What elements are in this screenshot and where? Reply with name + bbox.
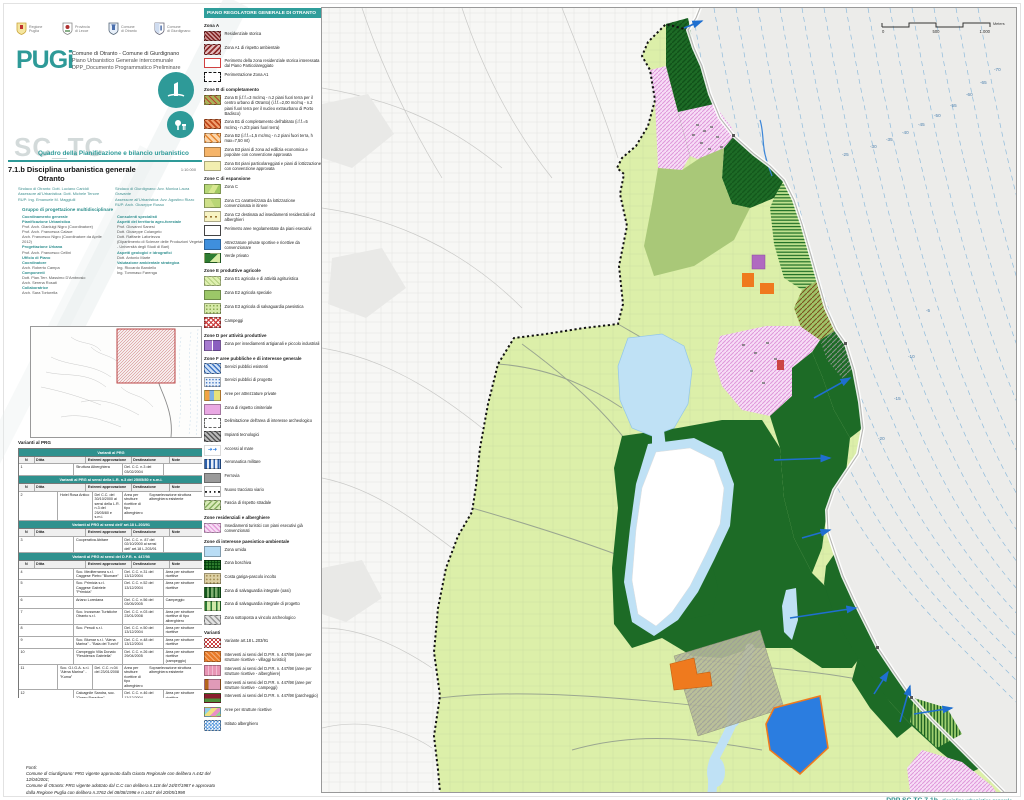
- legend-section-title: Zone residenziali e alberghiere: [204, 515, 321, 520]
- sources-note: Fonti: Comune di Giurdignano: PRG vigent…: [26, 765, 216, 796]
- legend-swatch-icon: [204, 363, 221, 374]
- table-cell: Area per strutture ricettive: [164, 625, 199, 636]
- svg-text:-40: -40: [902, 130, 909, 135]
- team-title: Gruppo di progettazione multidisciplinar…: [22, 207, 113, 212]
- legend-item: Fascia di rispetto stradale: [204, 500, 321, 511]
- credit-line: RUP: Ing. Emanuele M. Maggiulli: [18, 197, 105, 202]
- series-rule: [8, 160, 202, 162]
- sheet-caption: DPP SC.TC.7.1bdisciplina urbanistica gen…: [886, 789, 1012, 800]
- team-block: Coordinamento generalePianificazione Urb…: [22, 214, 204, 295]
- legend-item-label: Variante art.18 L.203/91: [225, 638, 269, 644]
- legend-item: Costa gariga-pascolo incolto: [204, 573, 321, 584]
- sheet-heading: 7.1.b Disciplina urbanistica generale Ot…: [8, 165, 202, 183]
- svg-text:-20: -20: [878, 436, 885, 441]
- legend-item-label: Delimitazione dell'area di interesse arc…: [225, 418, 312, 424]
- legend-swatch-icon: [204, 211, 221, 222]
- legend-swatch-icon: [204, 198, 221, 209]
- legend-item-label: Zona E2 agricola speciale: [225, 290, 272, 296]
- table-cell: Cooperativa Abitare: [74, 537, 122, 552]
- table-cell: 1: [19, 464, 74, 475]
- credits-giurdignano: Sindaco di Giurdignano: Avv. Monica Laur…: [115, 186, 202, 207]
- legend-item: Variante art.18 L.203/91: [204, 638, 321, 649]
- table-column-header-row: N Ditta Estremi approvazione Destinazion…: [19, 529, 202, 536]
- legend-section: Zone B di completamento Zona B (i.f.f.=3…: [204, 87, 321, 171]
- table-cell: Campeggio: [164, 597, 199, 608]
- table-rows: 3Cooperativa AbitareDel. C.C. n. 87 del …: [19, 537, 202, 553]
- legend-item-label: Zona A1 di rispetto ambientale: [225, 44, 280, 50]
- table-section-header: Varianti al PRG ai sensi dell' art.18 L.…: [19, 521, 202, 529]
- credit-line: Sindaco di Giurdignano: Avv. Monica Laur…: [115, 186, 202, 197]
- table-cell: Area per strutture ricettive di tipo alb…: [164, 609, 199, 624]
- legend-item-label: Aree per attrezzature private: [225, 390, 277, 396]
- provincia-lecce-shield-icon: [62, 22, 73, 35]
- credit-line: Assessore all'Urbanistica: Dott. Michele…: [18, 191, 105, 196]
- col-header: N: [19, 457, 35, 463]
- legend-swatch-icon: [204, 500, 221, 511]
- table-cell: [199, 464, 202, 475]
- red-variant-marker: [777, 360, 784, 370]
- col-header: Destinazione: [132, 457, 171, 463]
- varianti-table-wrap: Varianti al PRG N Ditta Estremi approvaz…: [18, 448, 202, 698]
- table-cell: Campeggio Villa Donato "Residenza Gabrie…: [74, 649, 122, 664]
- col-header: Note: [170, 561, 202, 567]
- pugi-rural-logo-icon: [167, 111, 194, 138]
- svg-text:-15: -15: [894, 396, 901, 401]
- table-cell: Sopraelevazione struttura alberghiera es…: [148, 665, 202, 689]
- logo-label: Comunedi Giurdignano: [167, 22, 193, 34]
- legend-swatch-icon: [204, 560, 221, 571]
- legend-item: Campeggi: [204, 317, 321, 328]
- table-cell: 4: [19, 569, 74, 580]
- legend-swatch-icon: [204, 573, 221, 584]
- table-cell: Area per strutture ricettive: [164, 569, 199, 580]
- legend-swatch-icon: [204, 303, 221, 314]
- legend-item: Interventi ai sensi del D.P.R. n. 447/98…: [204, 693, 321, 704]
- legend-item: Zona B1 di completamento dell'abitato (i…: [204, 119, 321, 130]
- legend-item-label: Attrezzature private sportive e ricettiv…: [225, 239, 322, 250]
- comune-otranto-shield-icon: [108, 22, 119, 35]
- table-cell: 10: [19, 649, 74, 664]
- artisan-zone-purple: [752, 255, 765, 269]
- credit-line: RUP: Arch. Giuseppe Russo: [115, 202, 202, 207]
- table-cell: Ariano Loredana: [74, 597, 122, 608]
- legend-item: Zona per insediamenti artigianali e picc…: [204, 340, 321, 351]
- legend-swatch-icon: [204, 290, 221, 301]
- table-cell: [199, 580, 202, 595]
- col-header: Ditta: [35, 457, 87, 463]
- legend-section: Zone C di espansione Zona C Zona C1 cara…: [204, 176, 321, 263]
- legend-swatch-icon: [204, 147, 221, 158]
- legend-swatch-icon: [204, 95, 221, 106]
- legend-item: Zona A1 di rispetto ambientale: [204, 44, 321, 55]
- legend-item: Impianti tecnologici: [204, 431, 321, 442]
- table-column-header-row: N Ditta Estremi approvazione Destinazion…: [19, 484, 202, 491]
- legend-swatch-icon: [204, 431, 221, 442]
- legend-item: Interventi ai sensi del D.P.R. n. 447/98…: [204, 679, 321, 690]
- table-cell: [199, 609, 202, 624]
- table-cell: 8: [19, 625, 74, 636]
- table-cell: Calcagnile Sandra, soc. "Green Paradise": [74, 690, 122, 698]
- table-cell: Soc. Mediterranea s.r.l. Caggese Pietro …: [74, 569, 122, 580]
- col-header: Note: [170, 529, 202, 535]
- legend-item: Zona B (i.f.f.=3 mc/mq - n.2 piani fuori…: [204, 95, 321, 116]
- legend-item-label: Accessi al mare: [225, 445, 254, 451]
- legend-swatch-icon: [204, 707, 221, 718]
- legend-section: Zone di interesse paesistico-ambientale …: [204, 539, 321, 625]
- legend-item-label: Ferrovia: [225, 473, 240, 479]
- col-header: Destinazione: [132, 484, 171, 490]
- table-row: 8Soc. Perudi s.r.l.Del. C.C. n.50 del 13…: [19, 625, 202, 637]
- legend-item-label: Servizi pubblici esistenti: [225, 363, 268, 369]
- table-cell: Soc. Blumar s.r.l. "Alena Marina" - "Bai…: [74, 637, 122, 648]
- svg-text:-45: -45: [918, 122, 925, 127]
- comune-giurdignano-shield-icon: [154, 22, 165, 35]
- table-row: 12Calcagnile Sandra, soc. "Green Paradis…: [19, 690, 202, 698]
- table-cell: 11: [19, 665, 58, 689]
- legend-item-label: Zona B1 di completamento dell'abitato (i…: [225, 119, 322, 130]
- subtitle-plan: Piano Urbanistico Generale intercomunale: [72, 58, 202, 65]
- legend-swatch-icon: [204, 665, 221, 676]
- legend-item-label: Perimetro della zona residenziale storic…: [225, 58, 322, 69]
- legend-item: Zona C1 caratterizzata da lottizzazione …: [204, 198, 321, 209]
- legend-item-label: Zona E3 agricola di salvaguardia paesist…: [225, 303, 304, 309]
- table-section-header: Varianti al PRG: [19, 449, 202, 457]
- logo-provincia-lecce: Provinciadi Lecce: [62, 22, 101, 35]
- col-header: Note: [170, 457, 202, 463]
- legend-item-label: Nuovo tracciato viario: [225, 486, 264, 492]
- table-cell: Del. C.C. n.46 del 13/12/2004: [123, 690, 164, 698]
- table-section-header: Varianti al PRG ai sensi della L.R. n.3 …: [19, 476, 202, 484]
- legend-item-label: Impianti tecnologici: [225, 431, 260, 437]
- legend-item: Perimetrazione Zona A1: [204, 72, 321, 83]
- legend-item: Aeronautica militare: [204, 459, 321, 470]
- team-right: Consulenti specialistiAspetti del territ…: [117, 214, 204, 295]
- variant-orange-small: [760, 283, 774, 294]
- logo-regione-puglia: RegionePuglia: [16, 22, 55, 35]
- legend-swatch-icon: [204, 253, 221, 264]
- legend-item: Istituto alberghiero: [204, 720, 321, 731]
- legend-item: Residenziale storica: [204, 31, 321, 42]
- col-header: N: [19, 529, 35, 535]
- sheet-code-title: 7.1.b Disciplina urbanistica generale: [8, 165, 202, 174]
- legend-item-label: Servizi pubblici di progetto: [225, 377, 273, 383]
- legend-item: Interventi ai sensi del D.P.R. n. 447/98…: [204, 665, 321, 676]
- legend-swatch-icon: [204, 133, 221, 144]
- regione-puglia-shield-icon: [16, 22, 27, 35]
- source-giurdignano: Comune di Giurdignano: PRG vigente appro…: [26, 771, 216, 783]
- legend-swatch-icon: [204, 31, 221, 42]
- table-cell: Area per strutture ricettive: [164, 690, 199, 698]
- col-header: N: [19, 484, 35, 490]
- title-block-panel: RegionePuglia Provinciadi Lecce Comunedi…: [8, 8, 202, 792]
- legend-item: Delimitazione dell'area di interesse arc…: [204, 418, 321, 429]
- table-column-header-row: N Ditta Estremi approvazione Destinazion…: [19, 457, 202, 464]
- legend-swatch-icon: [204, 445, 221, 456]
- legend-item-label: Interventi ai sensi del D.P.R. n. 447/98…: [225, 651, 322, 662]
- map-canvas: -25 -30 -35 -40 -45 -50 -55 -60 -65 -70 …: [322, 8, 1016, 792]
- legend-item-label: Zona C1 caratterizzata da lottizzazione …: [225, 198, 322, 209]
- legend-section: Varianti Variante art.18 L.203/91 Interv…: [204, 630, 321, 731]
- legend-item-label: Aeronautica militare: [225, 459, 261, 465]
- legend-item: Zona boschiva: [204, 560, 321, 571]
- legend-item: Ferrovia: [204, 473, 321, 484]
- legend-item-label: Zona umida: [225, 546, 247, 552]
- legend-item: Verde privato: [204, 253, 321, 264]
- legend-item: Zona di salvaguardia integrale di proget…: [204, 601, 321, 612]
- table-cell: Struttura Alberghiera: [74, 464, 122, 475]
- legend-item: Zona C2 destinata ad insediamenti reside…: [204, 211, 321, 222]
- team-line: Ing. Tommaso Farenga: [117, 270, 204, 275]
- legend-item-label: Perimetrazione Zona A1: [225, 72, 269, 78]
- legend-item: Interventi ai sensi del D.P.R. n. 447/98…: [204, 651, 321, 662]
- svg-text:-60: -60: [966, 92, 973, 97]
- overview-map-canvas: [31, 327, 201, 437]
- legend-section-title: Zone D per attività produttive: [204, 333, 321, 338]
- table-cell: Del. C.C. n.52 del 13/12/2004: [123, 580, 164, 595]
- logo-comune-giurdignano: Comunedi Giurdignano: [154, 22, 193, 35]
- legend-item: Zona E1 agricola e di attività agrituris…: [204, 276, 321, 287]
- legend-item-label: Zona sottoposta a vincolo archeologico: [225, 615, 296, 621]
- svg-text:-10: -10: [908, 354, 915, 359]
- table-row: 6Ariano LoredanaDel. C.C. n.56 del 03/05…: [19, 597, 202, 609]
- legend-swatch-icon: [204, 523, 221, 534]
- legend-item: Zona B4 piani particolareggiati e piani …: [204, 161, 321, 172]
- legend-section-title: Zone B di completamento: [204, 87, 321, 92]
- legend-swatch-icon: [204, 546, 221, 557]
- table-cell: 3: [19, 537, 74, 552]
- table-cell: [199, 637, 202, 648]
- svg-text:500: 500: [933, 29, 941, 34]
- table-cell: Sopraelevazione struttura alberghiera es…: [148, 492, 202, 521]
- variant-orange-small: [742, 273, 754, 287]
- svg-text:-55: -55: [950, 103, 957, 108]
- series-title: Quadro della Pianificazione e bilancio u…: [38, 150, 189, 157]
- logo-label: RegionePuglia: [29, 22, 55, 34]
- table-cell: [199, 690, 202, 698]
- table-cell: Del. C.C. n.04 del 23/01/2008: [93, 665, 123, 689]
- col-header: N: [19, 561, 35, 567]
- varianti-caption: Varianti al PRG: [18, 440, 51, 445]
- legend-item: Zona C: [204, 184, 321, 195]
- table-cell: Soc. Perudi s.r.l.: [74, 625, 122, 636]
- legend-swatch-icon: [204, 161, 221, 172]
- legend-swatch-icon: [204, 486, 221, 497]
- team-left: Coordinamento generalePianificazione Urb…: [22, 214, 109, 295]
- legend-panel: PIANO REGOLATORE GENERALE DI OTRANTO Zon…: [204, 8, 321, 794]
- legend-swatch-icon: [204, 119, 221, 130]
- svg-text:-65: -65: [980, 80, 987, 85]
- table-cell: [164, 464, 199, 475]
- table-cell: Del. C.C. n. 87 del 02/10/2000 ai sensi …: [123, 537, 164, 552]
- legend-item-label: Zona per insediamenti artigianali e picc…: [225, 340, 320, 346]
- legend-item: Perimetro aree regolamentate da piani es…: [204, 225, 321, 236]
- legend-item: Zona E2 agricola speciale: [204, 290, 321, 301]
- legend-item: Attrezzature private sportive e ricettiv…: [204, 239, 321, 250]
- table-cell: Area per strutture ricettive: [164, 637, 199, 648]
- table-cell: Area per strutture ricettive: [164, 580, 199, 595]
- legend-item-label: Zona E1 agricola e di attività agrituris…: [225, 276, 299, 282]
- legend-item: Zona B2 (i.f.f.=1,5 mc/mq - n.2 piani fu…: [204, 133, 321, 144]
- col-header: Ditta: [35, 484, 87, 490]
- legend-swatch-icon: [204, 239, 221, 250]
- table-cell: Del. C.C. n.31 del 13/12/2004: [123, 569, 164, 580]
- legend-swatch-icon: [204, 184, 221, 195]
- table-row: 5Soc. Primicia s.r.l. Caggese Gabriele "…: [19, 580, 202, 596]
- table-cell: Del. C.C. n.50 del 13/12/2004: [123, 625, 164, 636]
- legend-swatch-icon: [204, 404, 221, 415]
- legend-swatch-icon: [204, 638, 221, 649]
- legend-item-label: Zona C: [225, 184, 238, 190]
- legend-section-title: Varianti: [204, 630, 321, 635]
- legend-item: Aree per strutture ricettive: [204, 707, 321, 718]
- legend-swatch-icon: [204, 459, 221, 470]
- legend-item-label: Perimetro aree regolamentate da piani es…: [225, 225, 312, 231]
- col-header: Ditta: [35, 561, 87, 567]
- table-cell: Soc. G.I.G.A. s.r.l. "Alena Marina" - "K…: [58, 665, 93, 689]
- subtitle-dpp: DPP_Documento Programmatico Preliminare: [72, 65, 202, 72]
- legend-item-label: Zona C2 destinata ad insediamenti reside…: [225, 211, 322, 222]
- legend-item-label: Interventi ai sensi del D.P.R. n. 447/98…: [225, 679, 322, 690]
- table-cell: Area per strutture ricettive di tipo alb…: [123, 665, 148, 689]
- legend-item: Perimetro della zona residenziale storic…: [204, 58, 321, 69]
- legend-item: Accessi al mare: [204, 445, 321, 456]
- overview-map: [30, 326, 202, 438]
- legend-swatch-icon: [204, 720, 221, 731]
- legend-swatch-icon: [204, 225, 221, 236]
- legend-swatch-icon: [204, 340, 221, 351]
- legend-swatch-icon: [204, 679, 221, 690]
- legend-title: PIANO REGOLATORE GENERALE DI OTRANTO: [204, 8, 321, 18]
- overview-extent-rectangle: [117, 329, 175, 383]
- sheet-place: Otranto: [38, 174, 202, 183]
- col-header: Estremi approvazione: [86, 561, 131, 567]
- table-row: 1Struttura AlberghieraDel. C.C. n.3 del …: [19, 464, 202, 476]
- table-cell: Del. C.C. n.26 del 29/04/2005: [123, 649, 164, 664]
- legend-swatch-icon: [204, 390, 221, 401]
- legend-item: Insediamenti turistici con piani esecuti…: [204, 523, 321, 534]
- table-cell: Area per strutture ricettive di tipo alb…: [123, 492, 148, 521]
- legend-item-label: Interventi ai sensi del D.P.R. n. 447/98…: [225, 693, 318, 699]
- legend-swatch-icon: [204, 317, 221, 328]
- legend-section: Zone D per attività produttive Zona per …: [204, 333, 321, 351]
- col-header: Destinazione: [132, 529, 171, 535]
- legend-item-label: Costa gariga-pascolo incolto: [225, 573, 277, 579]
- table-cell: Area per strutture ricettive (campeggio): [164, 649, 199, 664]
- legend-item: Nuovo tracciato viario: [204, 486, 321, 497]
- source-otranto: Comune di Otranto: PRG vigente adottato …: [26, 783, 216, 795]
- team-line: (Dipartimento di Scienze delle Produzion…: [117, 239, 204, 249]
- legend-section-title: Zone C di espansione: [204, 176, 321, 181]
- legend-item: Zona umida: [204, 546, 321, 557]
- table-row: 2Hotel Rosa AnticoDel C.C. del 30/10/200…: [19, 492, 202, 522]
- credits-block: Sindaco di Otranto: Dott. Luciano Caridd…: [18, 186, 202, 207]
- table-cell: 6: [19, 597, 74, 608]
- table-cell: Hotel Rosa Antico: [58, 492, 93, 521]
- svg-text:-35: -35: [886, 137, 893, 142]
- legend-item-label: Zona B (i.f.f.=3 mc/mq - n.2 piani fuori…: [225, 95, 322, 116]
- legend-swatch-icon: [204, 377, 221, 388]
- col-header: Destinazione: [132, 561, 171, 567]
- table-cell: [199, 597, 202, 608]
- svg-text:-30: -30: [870, 144, 877, 149]
- table-cell: 12: [19, 690, 74, 698]
- legend-section-title: Zona A: [204, 23, 321, 28]
- table-cell: Del. C.C. n.3 del 03/02/2004: [123, 464, 164, 475]
- subtitle-communes: Comune di Otranto - Comune di Giurdignan…: [72, 51, 202, 58]
- col-header: Ditta: [35, 529, 87, 535]
- legend-item: Zona E3 agricola di salvaguardia paesist…: [204, 303, 321, 314]
- team-line: Arch. Sara Tortorella: [22, 290, 109, 295]
- table-cell: Del C.C. del 30/10/2000 ai sensi della L…: [93, 492, 123, 521]
- legend-item-label: Istituto alberghiero: [225, 720, 259, 726]
- legend-sections: Zona A Residenziale storica Zona A1 di r…: [204, 23, 321, 731]
- legend-item: Servizi pubblici esistenti: [204, 363, 321, 374]
- table-row: 4Soc. Mediterranea s.r.l. Caggese Pietro…: [19, 569, 202, 581]
- table-section-header: Varianti al PRG ai sensi del D.P.R. n. 4…: [19, 553, 202, 561]
- legend-section-title: Zone E produttive agricole: [204, 268, 321, 273]
- legend-section: Zone E produttive agricole Zona E1 agric…: [204, 268, 321, 327]
- legend-item: Servizi pubblici di progetto: [204, 377, 321, 388]
- table-row: 11Soc. G.I.G.A. s.r.l. "Alena Marina" - …: [19, 665, 202, 690]
- svg-text:Meters: Meters: [993, 22, 1005, 26]
- svg-text:-50: -50: [934, 113, 941, 118]
- table-cell: Del. C.C. n.56 del 03/05/2005: [123, 597, 164, 608]
- plan-sheet: RegionePuglia Provinciadi Lecce Comunedi…: [0, 0, 1024, 800]
- team-line: Arch. Francesco Nigro (Coordinatore da A…: [22, 234, 109, 244]
- svg-text:-5: -5: [926, 308, 931, 313]
- legend-swatch-icon: [204, 276, 221, 287]
- legend-swatch-icon: [204, 587, 221, 598]
- table-cell: [199, 625, 202, 636]
- svg-text:-25: -25: [842, 152, 849, 157]
- table-cell: [164, 537, 199, 552]
- legend-section: Zone residenziali e alberghiere Insediam…: [204, 515, 321, 533]
- legend-item-label: Aree per strutture ricettive: [225, 707, 272, 713]
- legend-section: Zone F aree pubbliche e di interesse gen…: [204, 356, 321, 511]
- table-cell: 7: [19, 609, 74, 624]
- institution-logos: RegionePuglia Provinciadi Lecce Comunedi…: [16, 22, 193, 35]
- logo-label: Comunedi Otranto: [121, 22, 147, 34]
- legend-item-label: Fascia di rispetto stradale: [225, 500, 272, 506]
- pugi-subtitle: Comune di Otranto - Comune di Giurdignan…: [72, 51, 202, 72]
- legend-item: Zona di salvaguardia integrale (oasi): [204, 587, 321, 598]
- legend-section: Zona A Residenziale storica Zona A1 di r…: [204, 23, 321, 82]
- table-cell: [199, 537, 202, 552]
- legend-item-label: Zona B2 (i.f.f.=1,5 mc/mq - n.2 piani fu…: [225, 133, 322, 144]
- legend-item-label: Interventi ai sensi del D.P.R. n. 447/98…: [225, 665, 322, 676]
- legend-swatch-icon: [204, 473, 221, 484]
- col-header: Estremi approvazione: [86, 529, 131, 535]
- table-cell: 9: [19, 637, 74, 648]
- table-row: 3Cooperativa AbitareDel. C.C. n. 87 del …: [19, 537, 202, 553]
- pugi-acronym: PUGi: [16, 46, 73, 75]
- legend-item: Zona di rispetto cimiteriale: [204, 404, 321, 415]
- legend-item: Aree per attrezzature private: [204, 390, 321, 401]
- table-cell: [199, 569, 202, 580]
- legend-swatch-icon: [204, 651, 221, 662]
- col-header: Estremi approvazione: [86, 457, 131, 463]
- legend-swatch-icon: [204, 72, 221, 83]
- table-cell: [199, 649, 202, 664]
- pugi-urban-logo-icon: [158, 72, 194, 108]
- legend-swatch-icon: [204, 58, 221, 69]
- legend-section-title: Zone di interesse paesistico-ambientale: [204, 539, 321, 544]
- logo-comune-otranto: Comunedi Otranto: [108, 22, 147, 35]
- table-cell: Del. C.C. n.48 del 13/12/2004: [123, 637, 164, 648]
- legend-item-label: Verde privato: [225, 253, 249, 259]
- legend-item-label: Zona di salvaguardia integrale di proget…: [225, 601, 300, 607]
- col-header: Estremi approvazione: [86, 484, 131, 490]
